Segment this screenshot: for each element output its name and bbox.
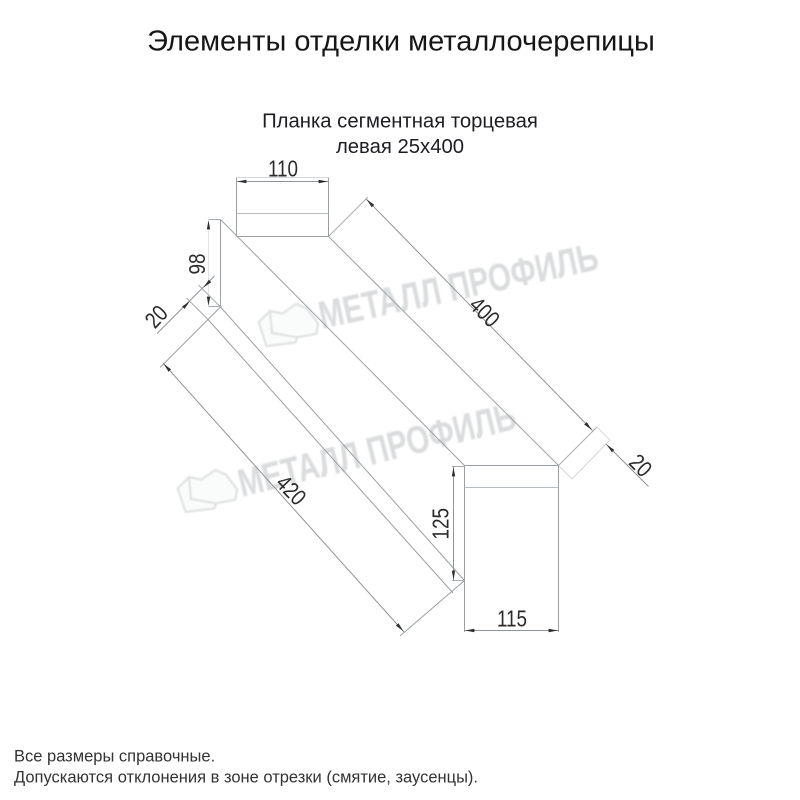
svg-text:110: 110 [268, 157, 298, 182]
svg-text:Элементы отделки металлочерепи: Элементы отделки металлочерепицы [147, 26, 655, 58]
svg-text:125: 125 [429, 508, 454, 539]
svg-text:98: 98 [185, 254, 210, 275]
svg-text:левая 25х400: левая 25х400 [336, 136, 464, 158]
svg-text:115: 115 [497, 607, 527, 632]
svg-text:Допускаются отклонения в зоне: Допускаются отклонения в зоне отрезки (с… [14, 769, 478, 787]
svg-text:Планка сегментная торцевая: Планка сегментная торцевая [262, 111, 538, 133]
svg-text:Все размеры справочные.: Все размеры справочные. [14, 748, 215, 766]
